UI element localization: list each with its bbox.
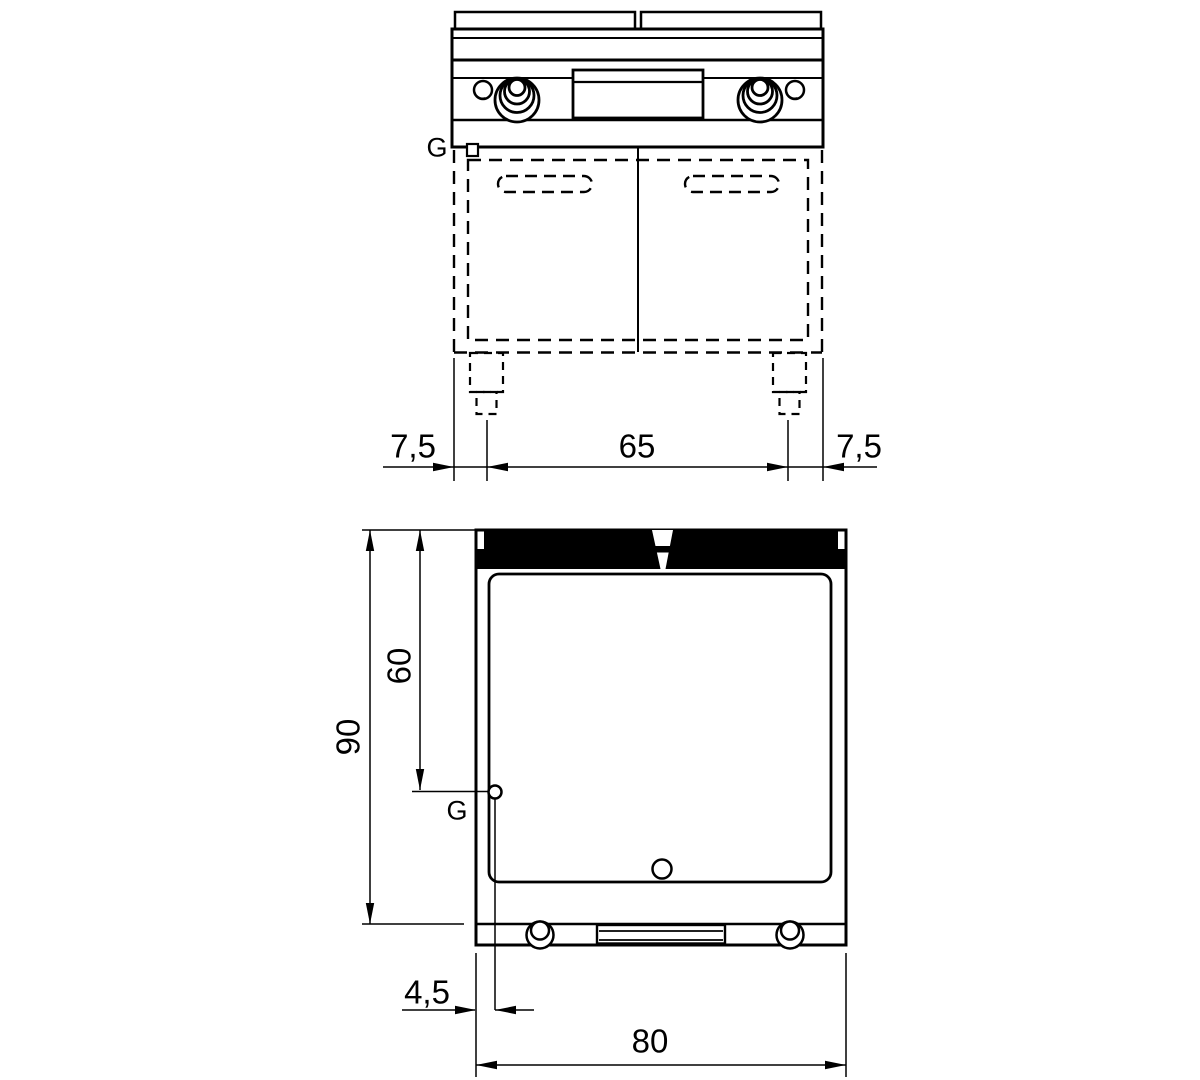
griddle-plate: [489, 574, 831, 882]
dim-label-leg-spacing: 65: [619, 430, 656, 463]
leg-right: [773, 353, 806, 392]
splash-guard-band: [478, 530, 846, 569]
door-handle-right: [685, 176, 779, 192]
drain-hole: [653, 860, 672, 879]
leg-left: [470, 353, 503, 392]
plan-knob-left: [527, 922, 554, 949]
front-gas-label: G: [426, 135, 447, 162]
plan-knob-right: [777, 922, 804, 949]
legs: [470, 353, 806, 414]
back-panels: [455, 12, 821, 29]
dim-label-total-width: 80: [632, 1025, 669, 1058]
plan-nameplate-slot: [597, 925, 725, 944]
dim-label-left-offset: 7,5: [390, 430, 436, 463]
leg-left-foot: [477, 392, 497, 414]
dim-label-total-depth: 90: [332, 719, 365, 756]
door-handle-left: [498, 176, 592, 192]
drawing-linework: [0, 0, 1200, 1080]
gas-connection-square: [467, 144, 478, 156]
dim-label-gas-depth: 60: [383, 648, 416, 685]
gas-connection-point: [489, 786, 502, 799]
dim-label-gas-side-offset: 4,5: [404, 976, 450, 1009]
front-view: [383, 12, 877, 481]
dim-label-right-offset: 7,5: [836, 430, 882, 463]
leg-right-foot: [780, 392, 800, 414]
technical-drawing: G 7,5 65 7,5 90 60 G 4,5 80: [0, 0, 1200, 1080]
nameplate: [573, 70, 703, 118]
plan-gas-label: G: [446, 798, 467, 825]
